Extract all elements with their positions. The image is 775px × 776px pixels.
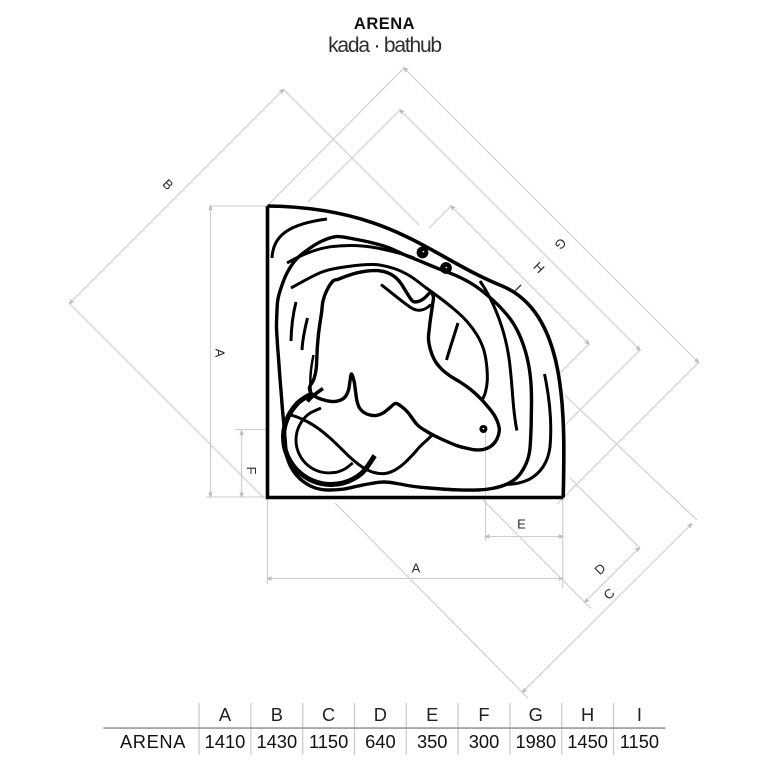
svg-text:1980: 1980 (515, 731, 556, 752)
svg-text:300: 300 (469, 731, 500, 752)
svg-text:1450: 1450 (567, 731, 608, 752)
svg-text:E: E (426, 704, 438, 725)
svg-text:1410: 1410 (205, 731, 246, 752)
svg-text:350: 350 (417, 731, 448, 752)
svg-text:I: I (637, 704, 642, 725)
svg-text:B: B (271, 704, 283, 725)
svg-text:ARENA: ARENA (120, 731, 186, 752)
svg-text:A: A (219, 704, 232, 725)
svg-text:G: G (529, 704, 543, 725)
svg-text:640: 640 (365, 731, 396, 752)
svg-text:1430: 1430 (256, 731, 297, 752)
svg-text:C: C (322, 704, 335, 725)
svg-text:1150: 1150 (309, 731, 348, 752)
svg-text:1150: 1150 (620, 731, 659, 752)
svg-text:F: F (478, 704, 489, 725)
svg-text:D: D (374, 704, 387, 725)
svg-text:H: H (581, 704, 594, 725)
